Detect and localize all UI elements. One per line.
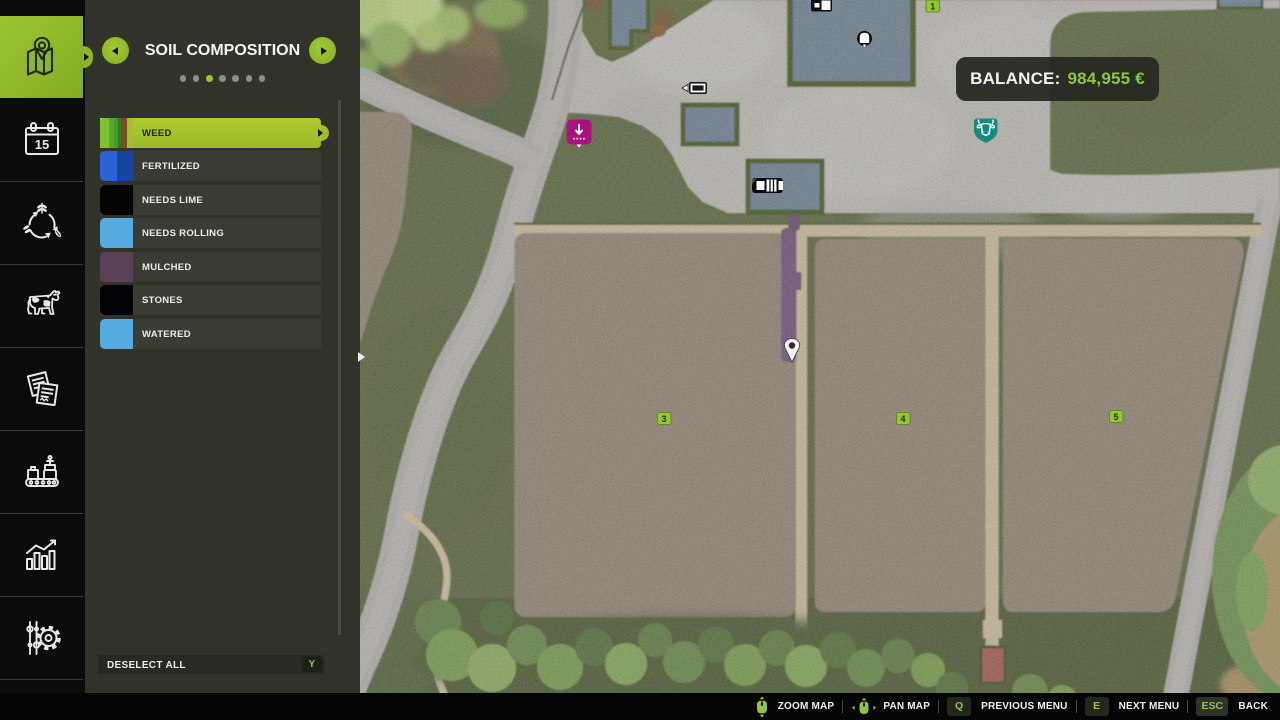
- svg-text:5: 5: [1113, 412, 1118, 422]
- svg-text:15: 15: [34, 137, 48, 152]
- svg-text:3: 3: [661, 414, 666, 424]
- svg-text:1: 1: [930, 2, 935, 12]
- svg-text:4: 4: [900, 414, 905, 424]
